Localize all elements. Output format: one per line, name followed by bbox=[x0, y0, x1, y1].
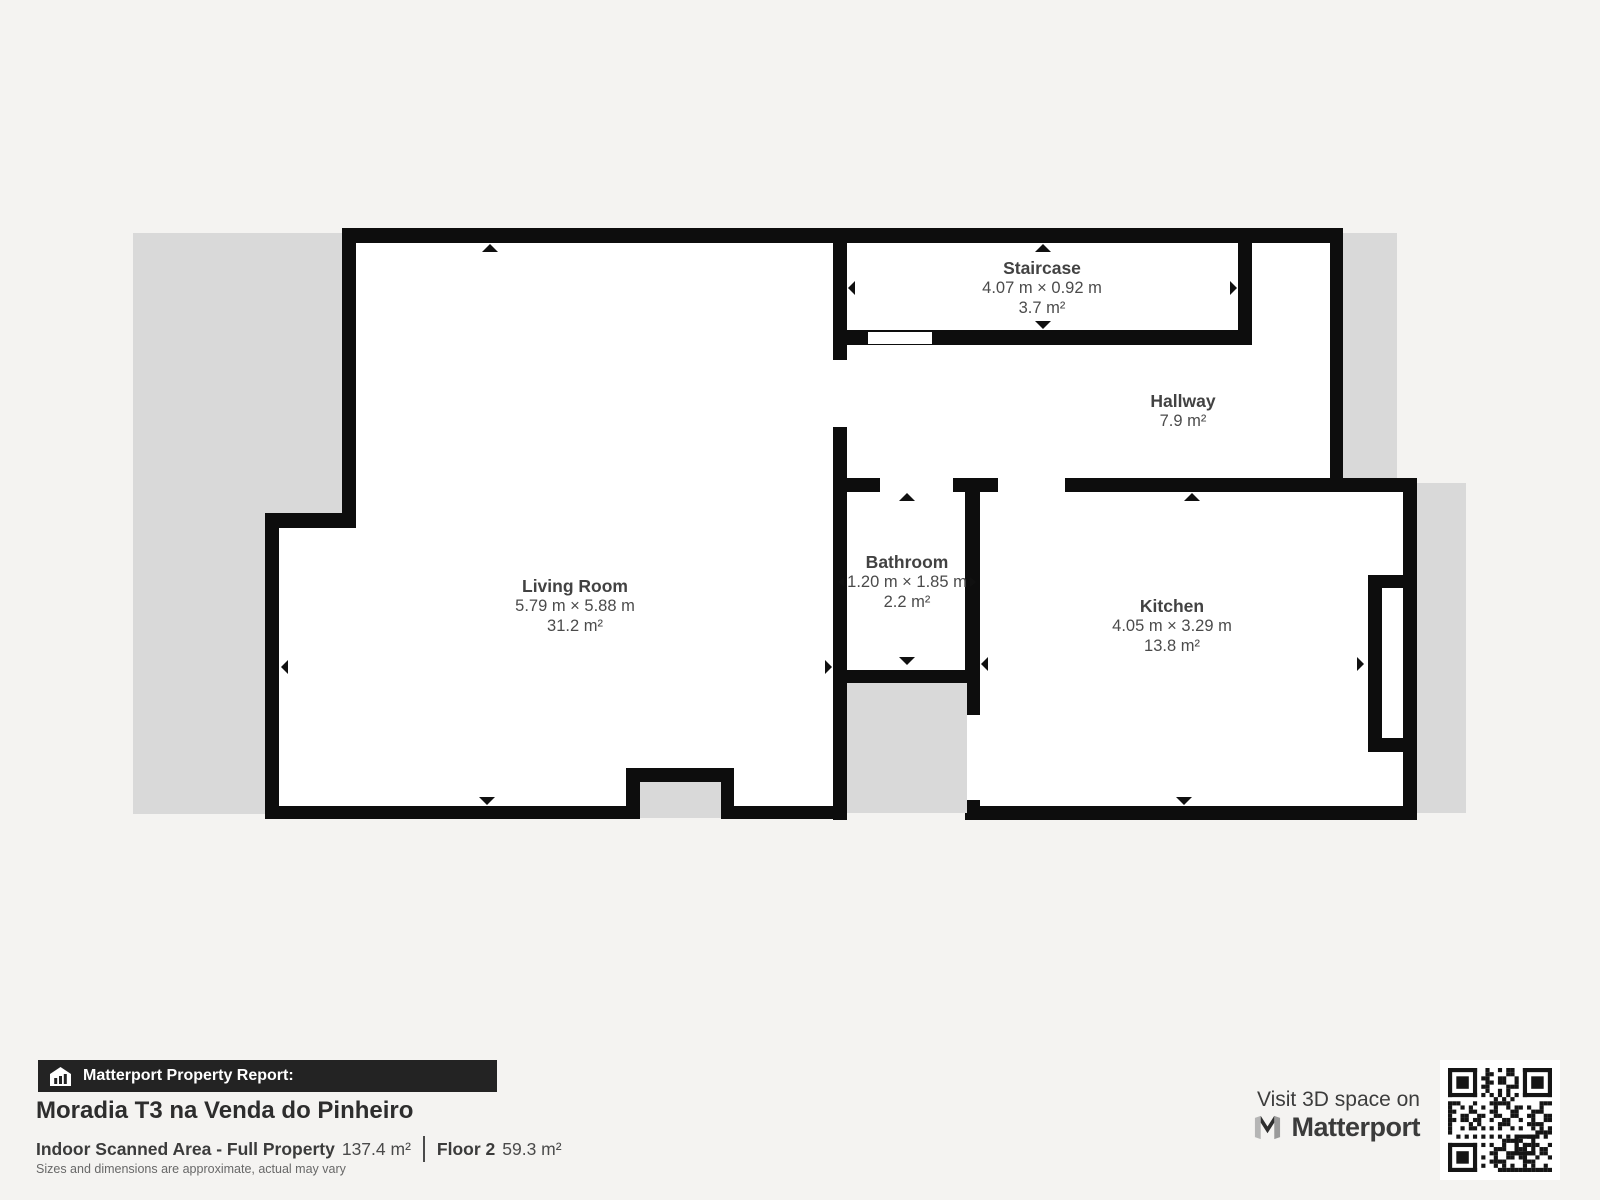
room-dimensions: 4.07 m × 0.92 m bbox=[982, 278, 1102, 298]
dimension-arrow-up-icon bbox=[1035, 244, 1051, 252]
room-floor-hallway bbox=[847, 345, 1330, 478]
scanned-area-label: Indoor Scanned Area - Full Property bbox=[36, 1139, 335, 1160]
room-label-staircase: Staircase 4.07 m × 0.92 m 3.7 m² bbox=[982, 258, 1102, 318]
dimension-arrow-right-icon bbox=[1230, 281, 1237, 295]
room-name: Living Room bbox=[515, 576, 635, 596]
room-label-hallway: Hallway 7.9 m² bbox=[1150, 391, 1215, 431]
dimension-arrow-left-icon bbox=[281, 660, 288, 674]
dimension-arrow-right-icon bbox=[825, 660, 832, 674]
dimension-arrow-up-icon bbox=[899, 493, 915, 501]
floor-label: Floor 2 bbox=[437, 1139, 495, 1160]
scanned-area-value: 137.4 m² bbox=[342, 1139, 411, 1160]
wall bbox=[1238, 243, 1252, 345]
room-name: Bathroom bbox=[838, 552, 976, 572]
wall bbox=[265, 806, 640, 819]
room-area: 31.2 m² bbox=[515, 616, 635, 636]
area-summary: Indoor Scanned Area - Full Property 137.… bbox=[36, 1136, 562, 1162]
room-label-bathroom: Bathroom 1.20 m × 1.85 m 2.2 m² bbox=[838, 552, 976, 612]
door-opening bbox=[880, 478, 953, 492]
room-area: 7.9 m² bbox=[1150, 411, 1215, 431]
room-area: 3.7 m² bbox=[982, 298, 1102, 318]
dimension-arrow-right-icon bbox=[970, 577, 976, 587]
wall bbox=[342, 228, 356, 528]
room-area: 2.2 m² bbox=[838, 592, 976, 612]
door-opening bbox=[833, 360, 847, 427]
dimension-arrow-down-icon bbox=[1176, 797, 1192, 805]
floorplan-canvas: Living Room 5.79 m × 5.88 m 31.2 m² Stai… bbox=[0, 0, 1600, 1200]
room-label-living-room: Living Room 5.79 m × 5.88 m 31.2 m² bbox=[515, 576, 635, 636]
dimension-arrow-left-icon bbox=[848, 281, 855, 295]
wall bbox=[1330, 228, 1343, 492]
room-name: Hallway bbox=[1150, 391, 1215, 411]
dimension-arrow-left-icon bbox=[981, 657, 988, 671]
matterport-logo-icon bbox=[1252, 1113, 1283, 1142]
qr-code bbox=[1440, 1060, 1560, 1180]
matterport-brand: Matterport bbox=[1252, 1112, 1421, 1143]
window-opening bbox=[1382, 588, 1403, 738]
room-label-kitchen: Kitchen 4.05 m × 3.29 m 13.8 m² bbox=[1112, 596, 1232, 656]
wall bbox=[965, 806, 1417, 820]
door-opening bbox=[868, 332, 932, 344]
disclaimer-note: Sizes and dimensions are approximate, ac… bbox=[36, 1162, 346, 1176]
room-name: Kitchen bbox=[1112, 596, 1232, 616]
dimension-arrow-down-icon bbox=[1035, 321, 1051, 329]
report-header-label: Matterport Property Report: bbox=[83, 1067, 294, 1085]
wall bbox=[833, 228, 847, 820]
unscanned-area bbox=[640, 782, 721, 818]
dimension-arrow-down-icon bbox=[479, 797, 495, 805]
dimension-arrow-left-icon bbox=[838, 577, 844, 587]
door-opening bbox=[998, 478, 1065, 492]
room-floor-living-room bbox=[279, 528, 356, 806]
dimension-arrow-up-icon bbox=[1184, 493, 1200, 501]
qr-code-pattern bbox=[1448, 1068, 1552, 1172]
wall bbox=[265, 513, 279, 819]
wall bbox=[626, 768, 734, 782]
report-header-bar: Matterport Property Report: bbox=[38, 1060, 497, 1092]
unscanned-area bbox=[1417, 483, 1466, 813]
divider bbox=[423, 1136, 425, 1162]
door-opening bbox=[965, 715, 980, 800]
unscanned-area bbox=[1343, 233, 1397, 478]
room-area: 13.8 m² bbox=[1112, 636, 1232, 656]
house-icon bbox=[50, 1067, 71, 1086]
room-dimensions: 4.05 m × 3.29 m bbox=[1112, 616, 1232, 636]
room-floor-living-room bbox=[356, 243, 833, 806]
room-name: Staircase bbox=[982, 258, 1102, 278]
wall bbox=[1403, 478, 1417, 820]
wall bbox=[833, 670, 980, 683]
dimension-arrow-right-icon bbox=[1357, 657, 1364, 671]
floor-value: 59.3 m² bbox=[502, 1139, 561, 1160]
room-dimensions: 1.20 m × 1.85 m bbox=[838, 572, 976, 592]
visit-3d-label: Visit 3D space on bbox=[1257, 1088, 1420, 1112]
dimension-arrow-up-icon bbox=[482, 244, 498, 252]
unscanned-area bbox=[847, 683, 967, 813]
property-title: Moradia T3 na Venda do Pinheiro bbox=[36, 1097, 413, 1125]
dimension-arrow-down-icon bbox=[899, 657, 915, 665]
room-dimensions-text: 1.20 m × 1.85 m bbox=[847, 572, 967, 592]
wall bbox=[721, 806, 847, 819]
matterport-wordmark: Matterport bbox=[1292, 1112, 1421, 1143]
room-dimensions: 5.79 m × 5.88 m bbox=[515, 596, 635, 616]
